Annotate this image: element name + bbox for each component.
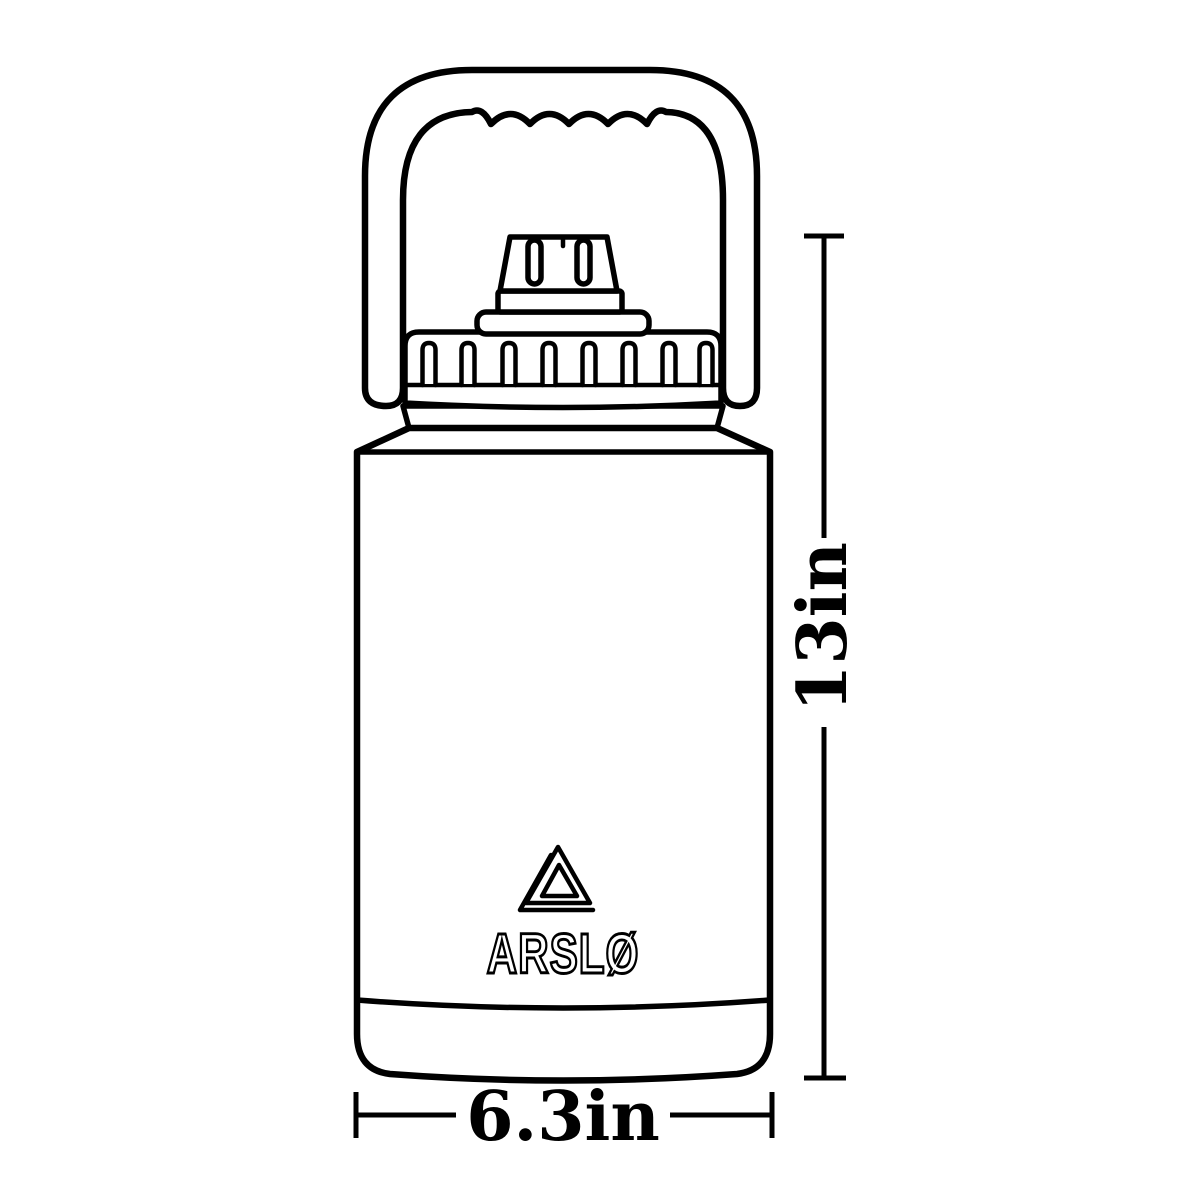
height-dimension: 13in [783,236,863,1078]
spout-cap-slot [528,240,541,284]
spout-cap-top [500,237,617,291]
height-dimension-label: 13in [783,542,863,712]
spout-cap-slot [577,240,590,284]
width-dimension: 6.3in [356,1077,772,1157]
spout-step [477,312,649,334]
lid [405,332,721,408]
brand-logo-text: ARSLØ [487,922,640,985]
spout-plate [498,291,622,312]
product-dimension-diagram: ARSLØ 13in 6.3in [0,0,1200,1200]
spout-cap [477,237,649,334]
width-dimension-label: 6.3in [466,1077,660,1157]
jug-line-drawing: ARSLØ 13in 6.3in [0,0,1200,1200]
